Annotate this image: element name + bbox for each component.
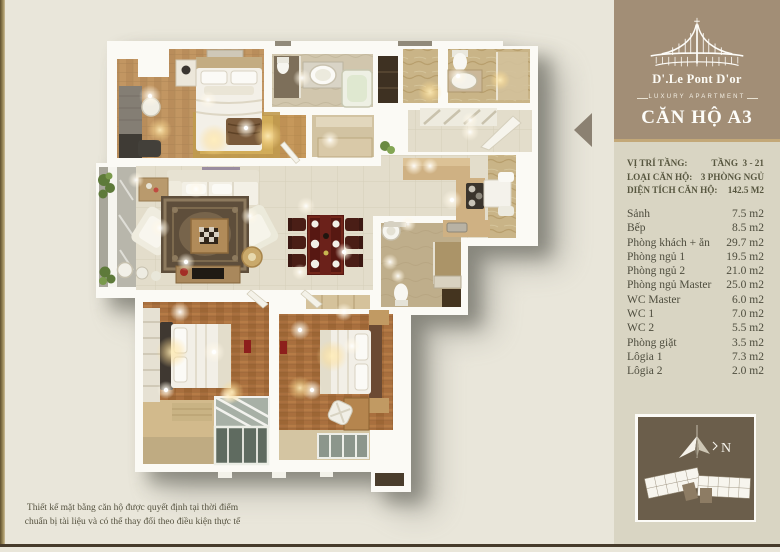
svg-text:N: N: [721, 441, 731, 456]
